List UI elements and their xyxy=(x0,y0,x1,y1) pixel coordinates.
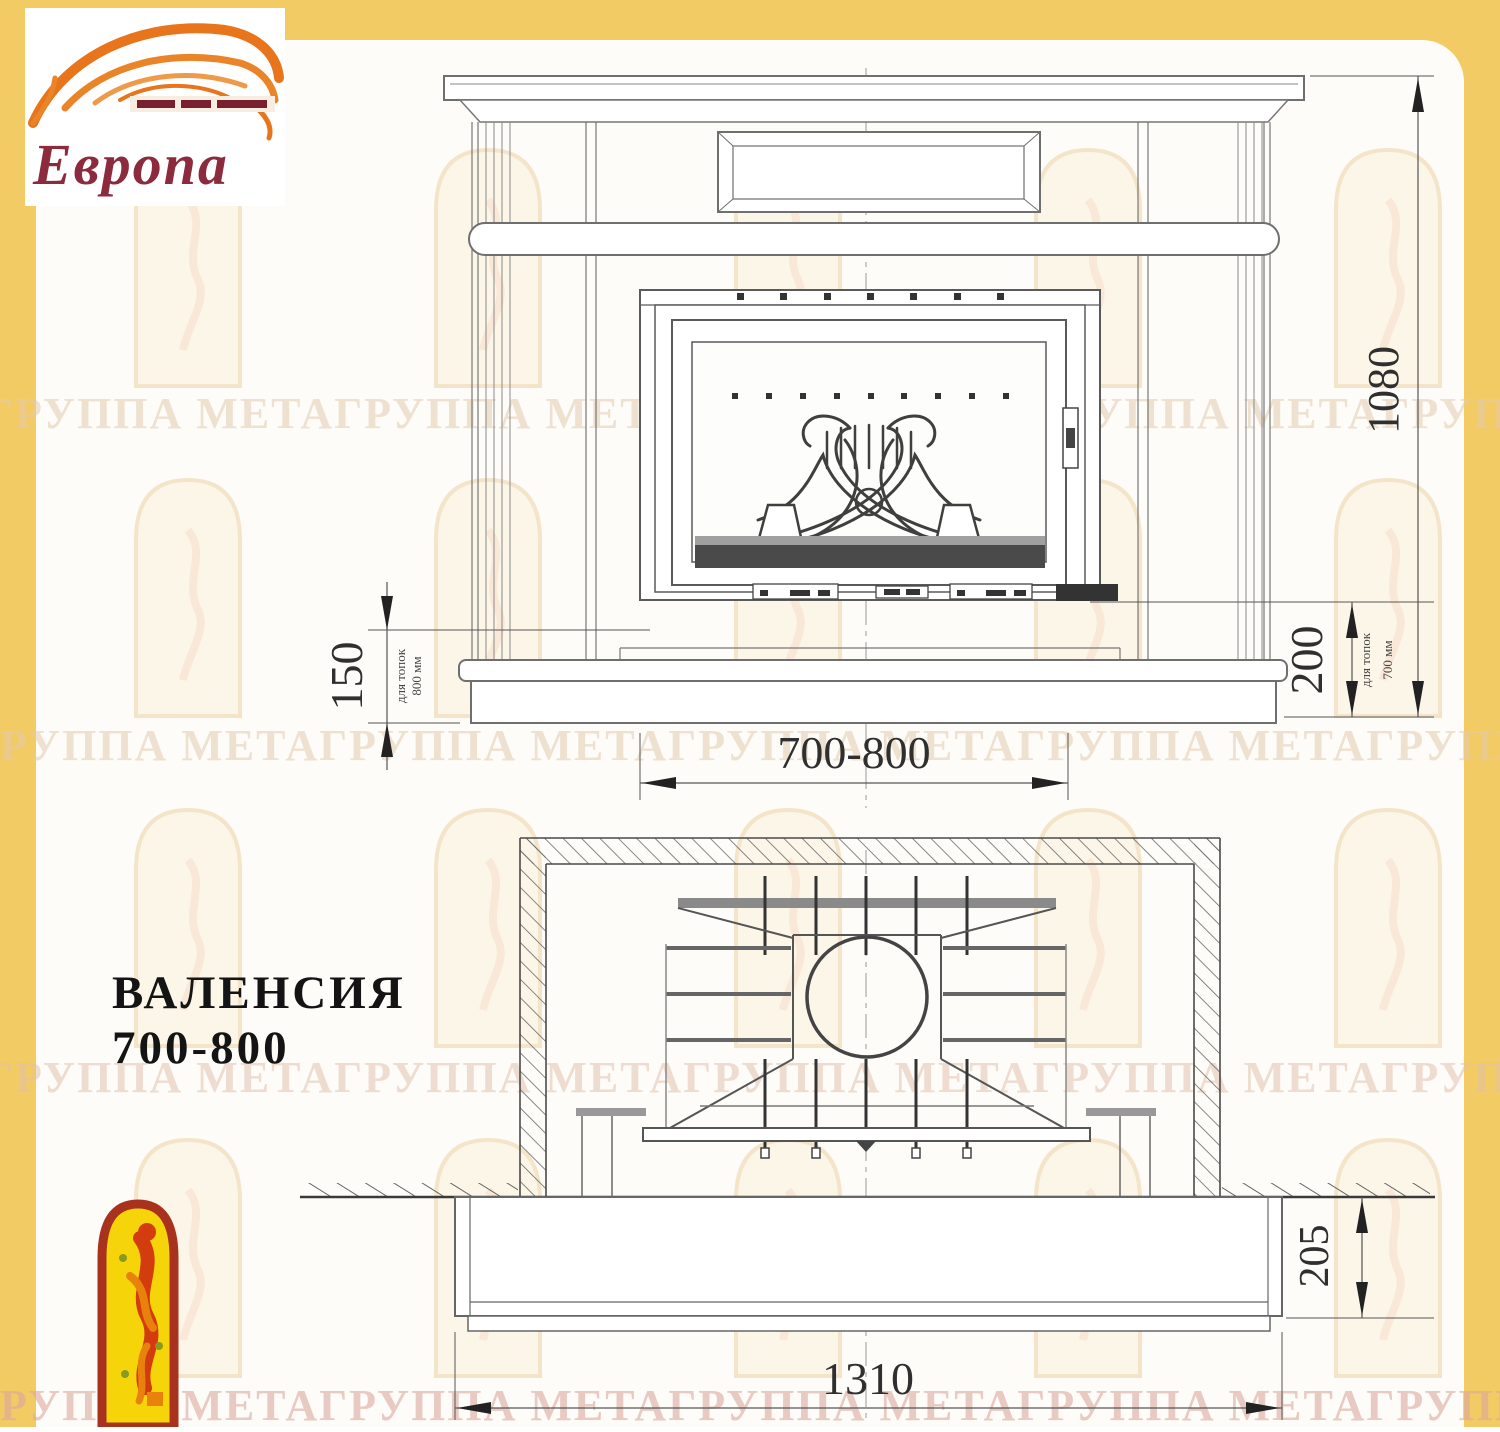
watermark-row: ГРУППА МЕТАГРУППА МЕТАГРУППА МЕТАГРУППА … xyxy=(0,1381,1500,1427)
dim-200-note2: 700 мм xyxy=(1380,640,1395,679)
dim-width-label: 700-800 xyxy=(777,727,930,778)
door-handle xyxy=(1063,408,1078,468)
front-view xyxy=(444,68,1304,808)
dim-200-label: 200 xyxy=(1281,626,1332,695)
dim-150-note2: 800 мм xyxy=(409,656,424,695)
model-title: ВАЛЕНСИЯ 700-800 xyxy=(112,966,406,1077)
watermark-row: ГРУППА МЕТАГРУППА МЕТАГРУППА МЕТАГРУППА … xyxy=(0,721,1500,770)
logo-tagline-band xyxy=(130,96,275,112)
firebox xyxy=(640,290,1118,601)
flame-swoosh-icon xyxy=(33,28,279,138)
dim-205-label: 205 xyxy=(1292,1225,1338,1288)
technical-drawing: ГРУППА МЕТАГРУППА МЕТАГРУППА МЕТАГРУППА … xyxy=(0,0,1500,1427)
dim-150-label: 150 xyxy=(321,642,372,711)
hearth-slab xyxy=(455,1197,1282,1331)
base-shelf xyxy=(459,660,1287,681)
model-title-line2: 700-800 xyxy=(112,1021,406,1076)
dim-height-label: 1080 xyxy=(1359,346,1408,434)
floor-line xyxy=(300,1183,1435,1197)
base-plinth xyxy=(471,681,1276,723)
torus-band xyxy=(469,223,1279,255)
frieze-panel xyxy=(718,132,1040,212)
corner-emblem-icon xyxy=(95,1196,181,1427)
model-title-line1: ВАЛЕНСИЯ xyxy=(112,966,406,1021)
page: ГРУППА МЕТАГРУППА МЕТАГРУППА МЕТАГРУППА … xyxy=(0,0,1500,1427)
dim-200-note1: для топок xyxy=(1358,632,1373,687)
dim-150-note1: для топок xyxy=(393,648,408,703)
dim-1310-label: 1310 xyxy=(822,1353,914,1404)
brand-logo: Европа xyxy=(25,8,285,206)
brand-name: Европа xyxy=(32,132,229,197)
